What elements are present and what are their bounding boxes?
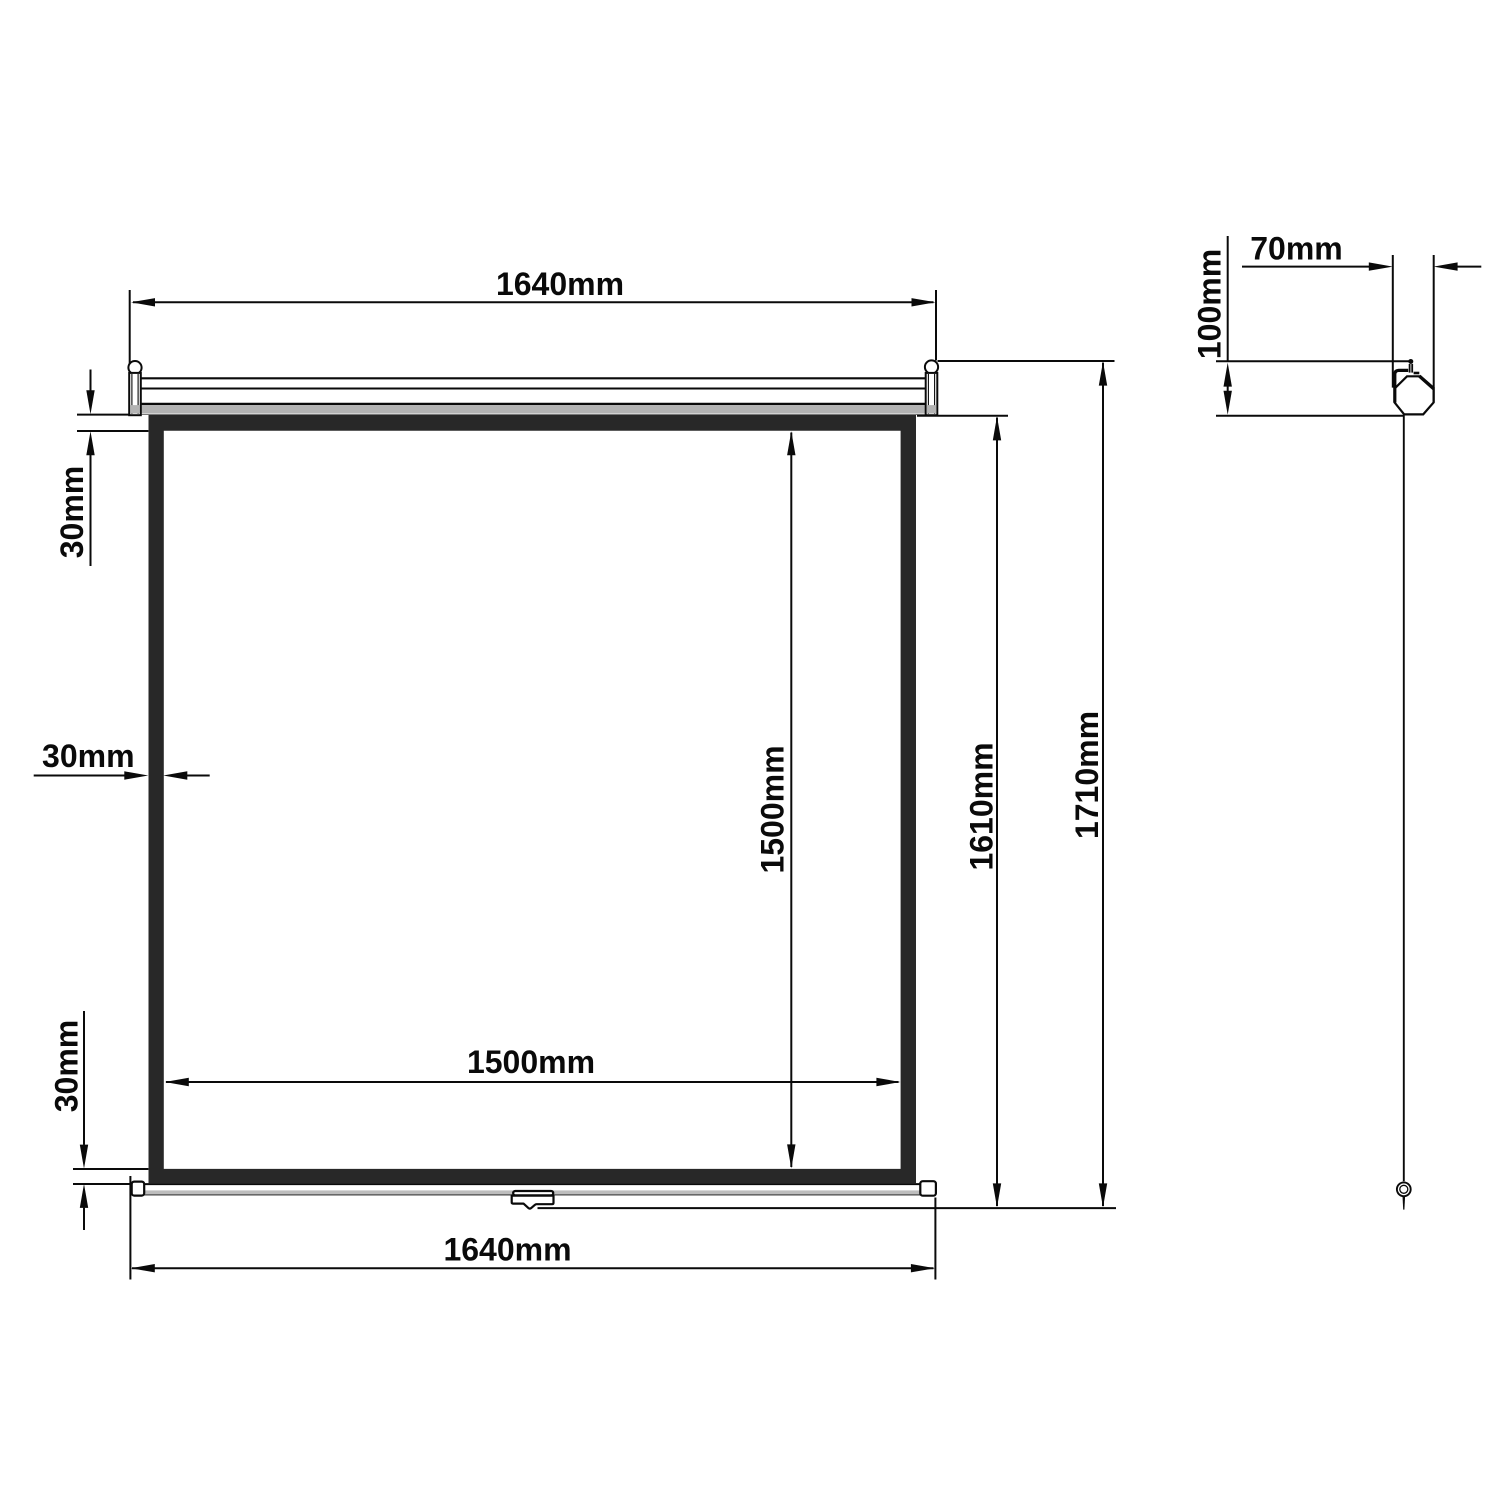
svg-text:100mm: 100mm — [1191, 249, 1227, 359]
svg-text:70mm: 70mm — [1250, 231, 1343, 267]
svg-text:1710mm: 1710mm — [1069, 711, 1105, 839]
svg-text:30mm: 30mm — [48, 1020, 84, 1113]
svg-text:1640mm: 1640mm — [496, 266, 624, 302]
svg-text:1610mm: 1610mm — [963, 742, 999, 870]
svg-text:1500mm: 1500mm — [467, 1044, 595, 1080]
svg-text:1500mm: 1500mm — [754, 745, 790, 873]
svg-text:30mm: 30mm — [54, 466, 90, 559]
svg-text:1640mm: 1640mm — [443, 1232, 571, 1268]
svg-text:30mm: 30mm — [42, 738, 135, 774]
